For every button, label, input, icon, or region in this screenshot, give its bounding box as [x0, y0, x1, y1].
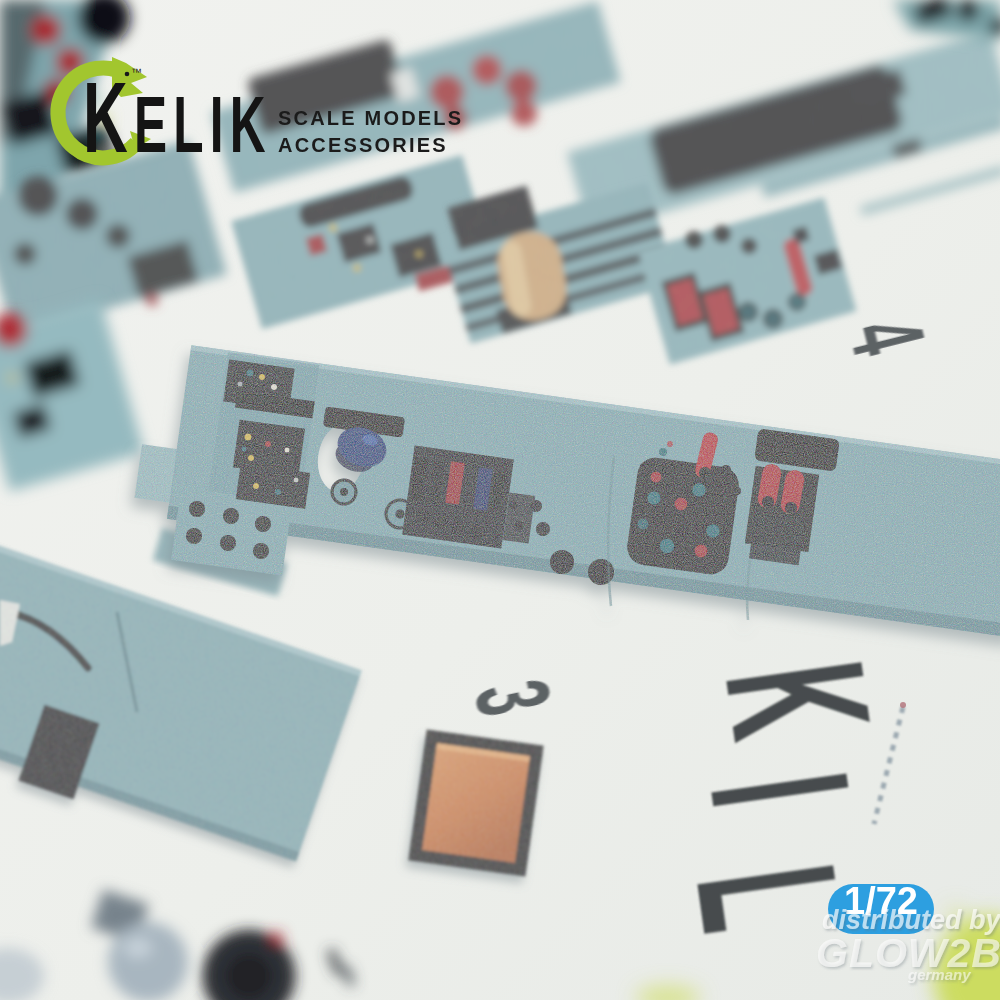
logo-trademark: ™	[131, 66, 142, 78]
logo-tagline-1: SCALE MODELS	[278, 107, 463, 129]
round-button	[550, 550, 574, 574]
watermark-germany: germany	[907, 966, 971, 983]
left-instrument-cluster	[209, 352, 320, 508]
product-photo: 4	[0, 0, 1000, 1000]
orange-face	[422, 743, 530, 863]
logo-initial: K	[83, 62, 128, 174]
orange-square-part	[408, 729, 543, 876]
logo-wordmark: ELIK	[134, 80, 272, 169]
distributor-watermark: distributed by GLOW2B germany	[816, 905, 1000, 983]
photo-canvas: 4	[0, 0, 1000, 1000]
logo-tagline-2: ACCESSORIES	[278, 134, 448, 156]
